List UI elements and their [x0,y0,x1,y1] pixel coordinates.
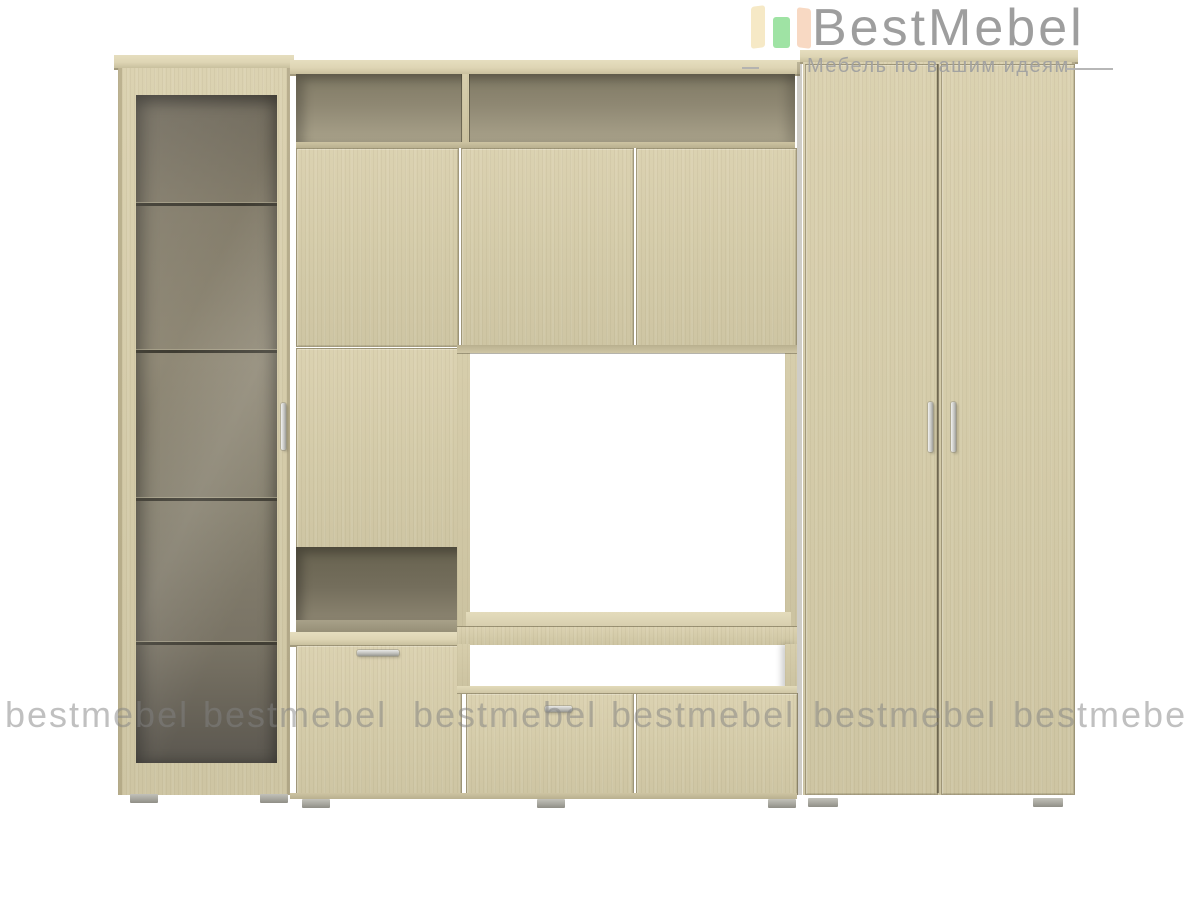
open-wardrobe-icon [750,4,816,50]
watermark-text: bestmebel [413,694,597,736]
display-cabinet-glass-interior [136,95,277,763]
open-niche-shelf [296,620,463,632]
tv-stand-left-post [457,644,470,690]
watermark-text: bestmebel [5,694,189,736]
upper-cabinet-door-left [296,148,459,347]
tagline-dash-left [742,67,759,69]
icon-left-panel [751,5,765,49]
upper-cabinet-door-middle [461,148,634,347]
tv-niche-top-edge [457,345,797,353]
cabinet-foot [1033,798,1063,807]
top-shelf-divider [462,74,469,144]
upper-cabinet-door-right [636,148,797,347]
cabinet-foot [808,798,838,807]
open-niche [296,547,463,620]
tv-stand-right-post [785,644,797,690]
open-top-shelf [296,74,795,144]
logo-text: BestMebel [812,0,1085,58]
product-image: BestMebel Мебель по вашим идеям bestmebe… [0,0,1188,900]
drawer-unit-bottom-edge [457,793,797,799]
tv-shelf-top [466,612,791,626]
icon-middle-panel [773,17,790,48]
unit-seam-shadow [797,62,802,795]
logo-tagline: Мебель по вашим идеям [807,55,1070,78]
tagline-dash-right [1066,68,1113,70]
watermark-text: bestmebel [813,694,997,736]
icon-right-panel [797,7,811,49]
lower-cabinet-handle [357,650,399,656]
glass-reflection [136,95,277,763]
wardrobe-door-seam [937,64,939,793]
wardrobe-handle-right [951,402,956,452]
brand-logo: BestMebel Мебель по вашим идеям [740,0,1180,85]
cabinet-foot [260,794,288,803]
cabinet-foot [768,799,796,808]
wardrobe-door-right [941,64,1075,795]
watermark-text: bestmebel [611,694,795,736]
display-cabinet-handle [281,403,286,450]
cabinet-foot [537,799,565,808]
tv-niche-left-panel [457,345,470,645]
watermark-text: bestmebel [203,694,387,736]
side-cabinet-door [296,348,465,549]
watermark-text: bestmebel [1013,694,1188,736]
cabinet-foot [130,794,158,803]
tv-niche-right-panel [785,345,797,645]
cabinet-foot [302,799,330,808]
tv-shelf-front-edge [457,626,797,645]
wardrobe-handle-left [928,402,933,452]
wardrobe-door-left [805,64,938,795]
